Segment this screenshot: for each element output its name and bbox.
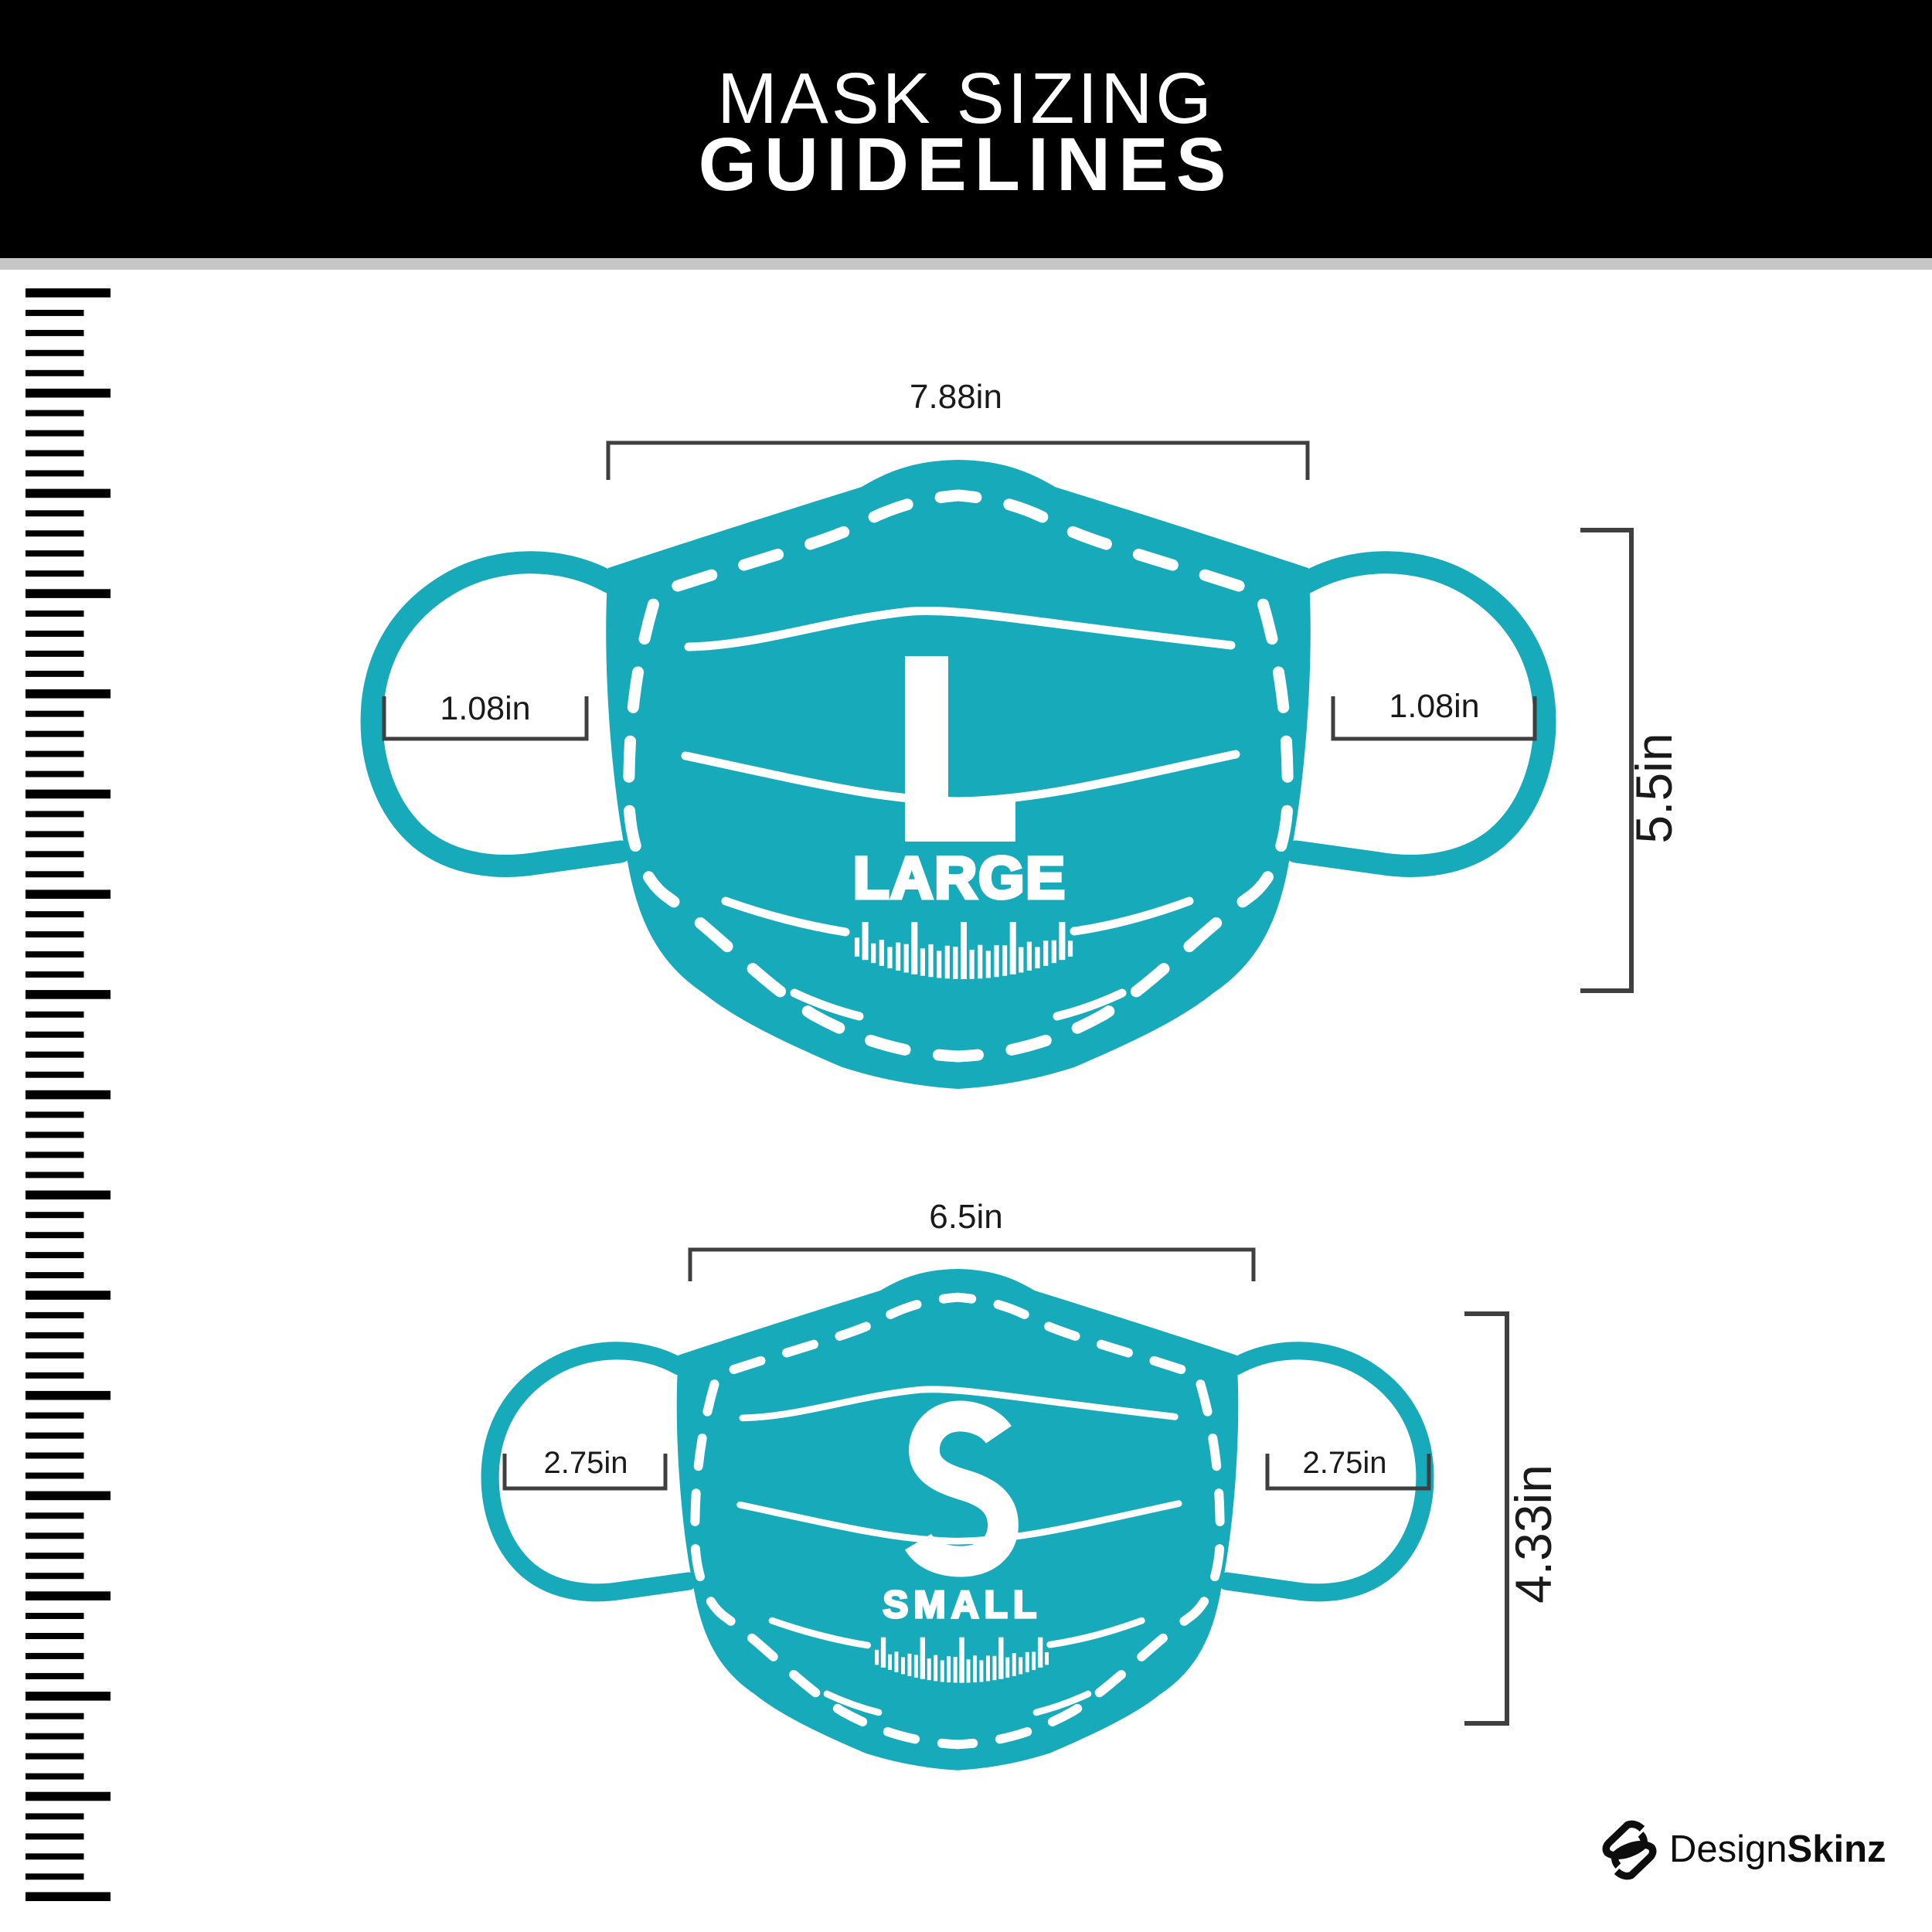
svg-text:1.08in: 1.08in <box>440 690 530 727</box>
svg-text:SMALL: SMALL <box>883 1583 1042 1626</box>
svg-text:7.88in: 7.88in <box>910 378 1002 416</box>
svg-text:DesignSkinz: DesignSkinz <box>1669 1828 1886 1870</box>
svg-text:LARGE: LARGE <box>853 845 1066 911</box>
svg-text:GUIDELINES: GUIDELINES <box>699 122 1234 206</box>
svg-text:1.08in: 1.08in <box>1389 688 1479 725</box>
svg-text:4.33in: 4.33in <box>1505 1464 1562 1604</box>
svg-text:6.5in: 6.5in <box>929 1198 1002 1236</box>
svg-text:2.75in: 2.75in <box>544 1446 628 1480</box>
svg-text:2.75in: 2.75in <box>1303 1446 1387 1480</box>
svg-text:5.5in: 5.5in <box>1625 733 1682 843</box>
